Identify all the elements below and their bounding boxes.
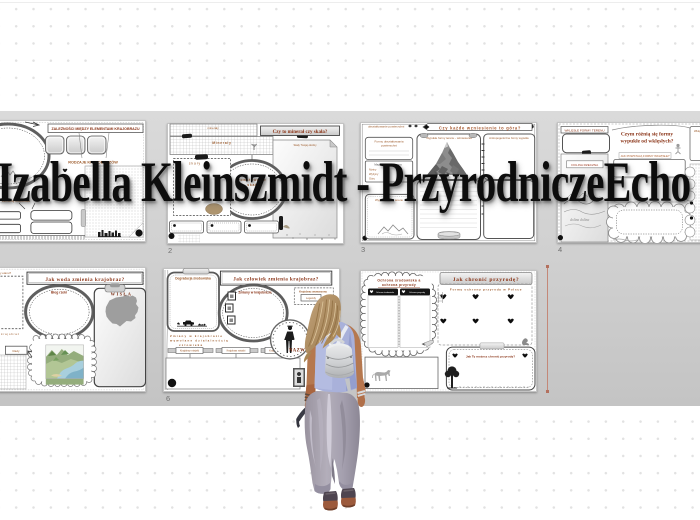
svg-text:Zmiany w krajobrazie: Zmiany w krajobrazie xyxy=(238,291,272,295)
svg-text:minerały: minerały xyxy=(207,126,219,130)
svg-text:Zmiany w krajobrazie: Zmiany w krajobrazie xyxy=(170,334,223,338)
svg-text:Rady: Rady xyxy=(12,349,20,353)
svg-text:Ochrona przyrody: Ochrona przyrody xyxy=(409,292,425,294)
svg-text:Bieg rzeki: Bieg rzeki xyxy=(51,291,67,295)
svg-text:dolina dolina: dolina dolina xyxy=(570,218,589,222)
svg-text:WISŁA: WISŁA xyxy=(111,292,133,297)
svg-text:. krajobraz: . krajobraz xyxy=(0,332,20,336)
svg-text:Krajobraz miejski: Krajobraz miejski xyxy=(180,350,199,353)
svg-text:Ochrona środowiska a: Ochrona środowiska a xyxy=(377,279,420,283)
svg-text:ochrona przyrody: ochrona przyrody xyxy=(382,283,416,287)
svg-text:wywołane działalnością: wywołane działalnością xyxy=(169,339,229,343)
svg-text:Jak chronić przyrodę?: Jak chronić przyrodę? xyxy=(453,277,519,283)
svg-text:WKLĘSŁE FORMY TERENU: WKLĘSŁE FORMY TERENU xyxy=(564,128,604,132)
svg-text:Krajobraz wiejski: Krajobraz wiejski xyxy=(227,350,246,353)
svg-text:Skały Twojej okolicy: Skały Twojej okolicy xyxy=(293,143,317,147)
svg-text:wypukłe od wklęsłych?: wypukłe od wklęsłych? xyxy=(620,139,673,145)
svg-text:Czy każde wzniesienie to góra?: Czy każde wzniesienie to góra? xyxy=(439,125,521,130)
svg-text:Jak Ty możesz chronić przyrodę: Jak Ty możesz chronić przyrodę? xyxy=(466,355,515,359)
svg-text:ukształtowanie powierzchni: ukształtowanie powierzchni xyxy=(368,125,405,129)
svg-text:Jak woda zmienia krajobraz?: Jak woda zmienia krajobraz? xyxy=(45,277,124,283)
svg-text:ZALEŻNOŚCI MIĘDZY ELEMENTAMI K: ZALEŻNOŚCI MIĘDZY ELEMENTAMI KRAJOBRAZU xyxy=(51,126,140,131)
svg-text:Wypukłe formy terenu - wzniesi: Wypukłe formy terenu - wzniesienia xyxy=(426,136,472,140)
svg-text:człowieka: człowieka xyxy=(179,343,203,347)
svg-text:Wklęsłe form: Wklęsłe form xyxy=(694,129,700,133)
svg-text:Czy to minerał czy skała?: Czy to minerał czy skała? xyxy=(273,130,328,135)
svg-text:Antropogeniczne formy wypukłe: Antropogeniczne formy wypukłe xyxy=(489,136,529,140)
svg-text:Degradacja środowiska: Degradacja środowiska xyxy=(175,277,211,281)
svg-text:y etanu?: y etanu? xyxy=(0,271,11,275)
svg-text:Jak człowiek zmienia krajobraz: Jak człowiek zmienia krajobraz? xyxy=(233,277,318,283)
svg-text:powierzchni: powierzchni xyxy=(381,143,397,147)
svg-text:Czym różnią się formy: Czym różnią się formy xyxy=(621,132,674,138)
svg-text:Minerały: Minerały xyxy=(212,141,231,145)
svg-text:Formy ochrony przyrody w Polsc: Formy ochrony przyrody w Polsce xyxy=(450,288,522,292)
